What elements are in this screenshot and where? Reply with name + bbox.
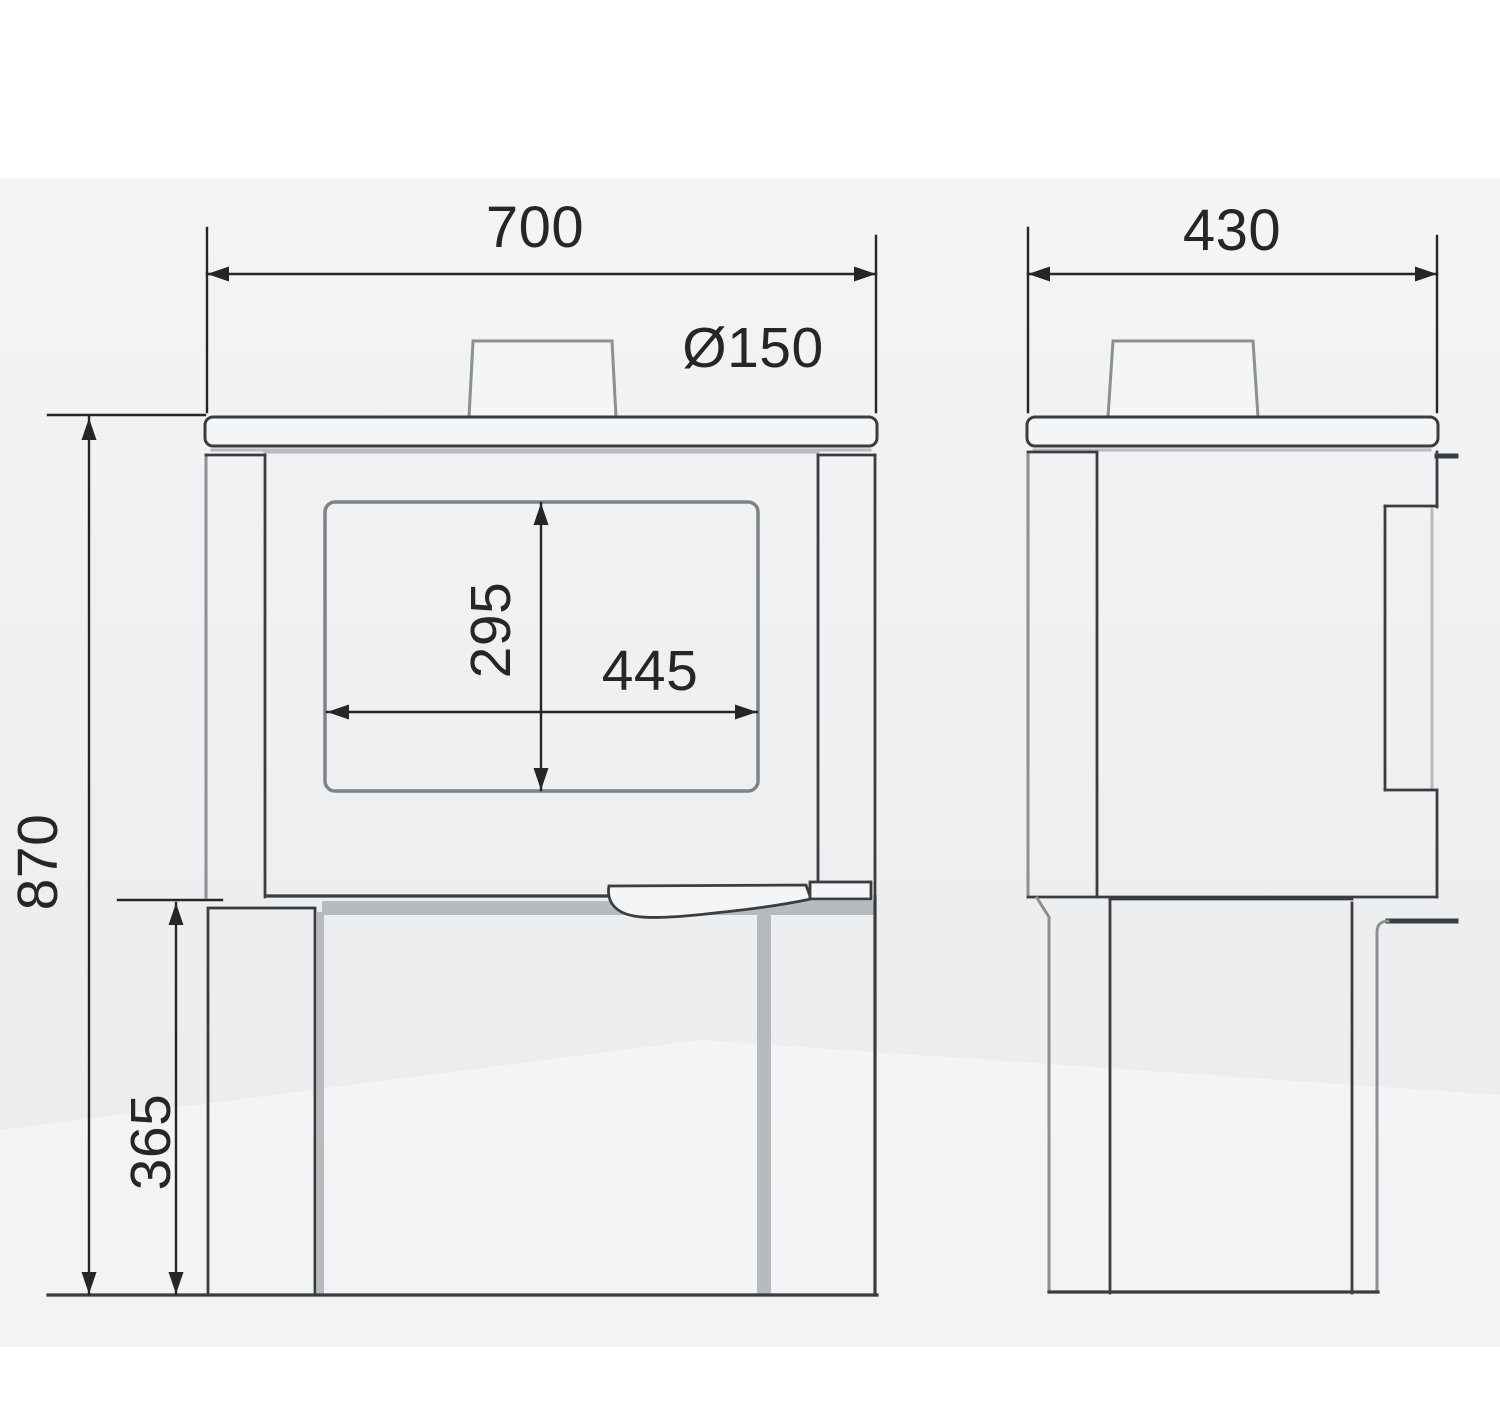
dimension-label-side-depth: 430	[1183, 198, 1281, 263]
flue-collar-side	[1108, 341, 1258, 417]
pedestal-left-shadow	[317, 912, 324, 1295]
top-plate-front	[205, 417, 877, 446]
top-plate-side	[1027, 417, 1438, 446]
dimension-label-overall-height: 870	[6, 814, 70, 911]
dimension-label-glass-width: 445	[602, 639, 699, 703]
flue-collar-front	[469, 341, 616, 417]
dimension-label-base-height: 365	[119, 1094, 183, 1191]
ash-lip	[810, 882, 871, 899]
stove-dimension-drawing: 700 Ø150	[0, 0, 1500, 1427]
dimension-label-front-width: 700	[486, 195, 584, 260]
dimension-label-glass-height: 295	[459, 582, 523, 679]
pedestal-divider	[757, 915, 771, 1295]
dimension-label-flue-diameter: Ø150	[682, 316, 823, 380]
technical-drawing-page: 700 Ø150	[0, 0, 1500, 1427]
